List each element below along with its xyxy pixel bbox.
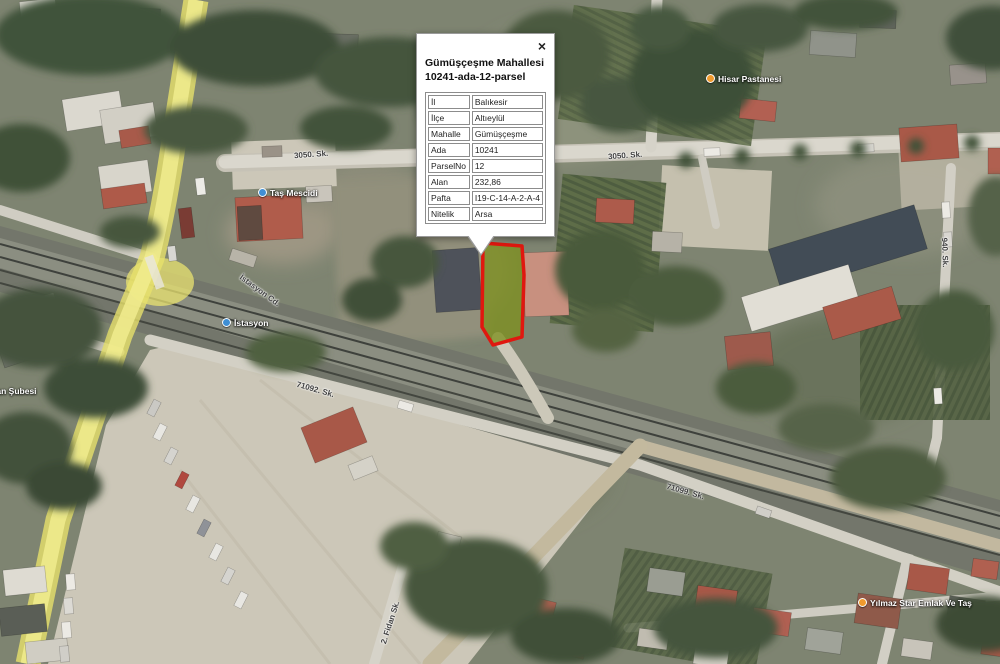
poi-label-subesi[interactable]: oğan Şubesi xyxy=(0,386,37,396)
poi-marker-icon[interactable] xyxy=(858,598,867,607)
parcel-attribute-row: Mahalle Gümüşçeşme xyxy=(428,127,543,141)
popup-title-line1: Gümüşçeşme Mahallesi xyxy=(425,57,546,71)
parcel-attributes-table: İl Balıkesir İlçe Altıeylül Mahalle Gümü… xyxy=(425,92,546,224)
attr-label: Alan xyxy=(428,175,470,189)
parcel-attribute-row: İl Balıkesir xyxy=(428,95,543,109)
satellite-map-canvas[interactable]: 3050. Sk. 3050. Sk. İstasyon Cd. 71092. … xyxy=(0,0,1000,664)
parcel-attribute-row: Alan 232,86 xyxy=(428,175,543,189)
parcel-info-popup: × Gümüşçeşme Mahallesi 10241-ada-12-pars… xyxy=(416,33,555,237)
poi-marker-icon[interactable] xyxy=(222,318,231,327)
poi-label-yilmaz-star[interactable]: Yılmaz Star Emlak Ve Taş xyxy=(858,598,972,608)
parcel-attribute-row: İlçe Altıeylül xyxy=(428,111,543,125)
poi-label-istasyon[interactable]: İstasyon xyxy=(222,318,269,328)
parcel-attribute-row: Pafta I19-C-14-A-2-A-4 xyxy=(428,191,543,205)
attr-label: Ada xyxy=(428,143,470,157)
parcel-attribute-row: Ada 10241 xyxy=(428,143,543,157)
attr-label: Nitelik xyxy=(428,207,470,221)
poi-marker-icon[interactable] xyxy=(706,74,715,83)
attr-value: Balıkesir xyxy=(472,95,543,109)
parcel-attribute-row: ParselNo 12 xyxy=(428,159,543,173)
popup-title-line2: 10241-ada-12-parsel xyxy=(425,71,546,85)
attr-label: Pafta xyxy=(428,191,470,205)
attr-label: İlçe xyxy=(428,111,470,125)
attr-label: ParselNo xyxy=(428,159,470,173)
poi-label-mescid[interactable]: Taş Mescidi xyxy=(258,188,318,198)
close-icon[interactable]: × xyxy=(538,39,546,53)
attr-value: Altıeylül xyxy=(472,111,543,125)
popup-title: Gümüşçeşme Mahallesi 10241-ada-12-parsel xyxy=(425,57,546,84)
attr-value: 10241 xyxy=(472,143,543,157)
attr-value: Arsa xyxy=(472,207,543,221)
street-label: 940. Sk. xyxy=(940,237,950,267)
attr-value: 12 xyxy=(472,159,543,173)
attr-label: Mahalle xyxy=(428,127,470,141)
attr-label: İl xyxy=(428,95,470,109)
attr-value: Gümüşçeşme xyxy=(472,127,543,141)
parcel-highlight[interactable] xyxy=(482,243,524,345)
poi-marker-icon[interactable] xyxy=(258,188,267,197)
parcel-attribute-row: Nitelik Arsa xyxy=(428,207,543,221)
attr-value: I19-C-14-A-2-A-4 xyxy=(472,191,543,205)
attr-value: 232,86 xyxy=(472,175,543,189)
poi-label-hisar-pastanesi[interactable]: Hisar Pastanesi xyxy=(706,74,781,84)
